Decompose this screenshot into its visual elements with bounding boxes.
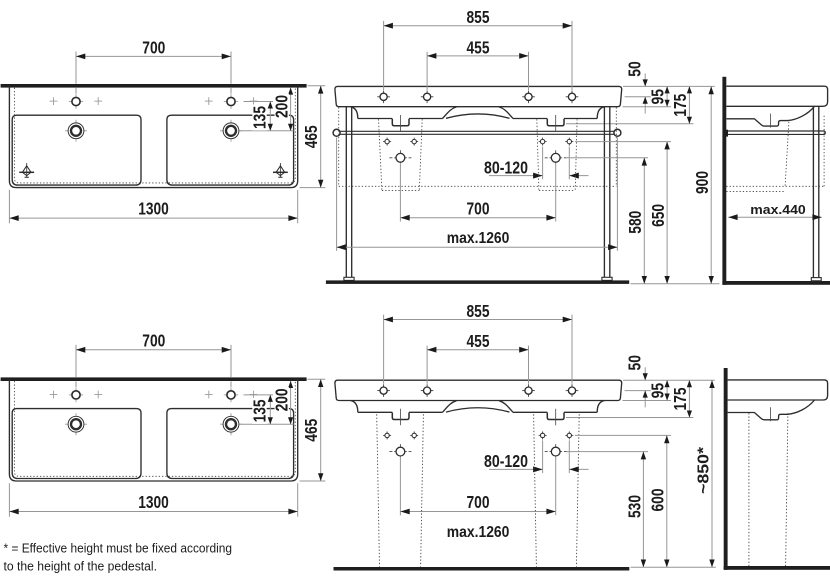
svg-text:max.1260: max.1260: [447, 524, 510, 541]
svg-text:135: 135: [250, 106, 270, 129]
svg-text:855: 855: [467, 7, 490, 27]
svg-text:855: 855: [467, 301, 490, 321]
svg-text:650: 650: [648, 204, 668, 227]
svg-text:175: 175: [670, 387, 690, 410]
svg-text:80-120: 80-120: [484, 157, 528, 177]
svg-text:600: 600: [648, 489, 668, 512]
svg-text:max.1260: max.1260: [447, 230, 510, 247]
svg-text:530: 530: [624, 495, 644, 518]
svg-text:~850*: ~850*: [695, 446, 712, 494]
svg-text:700: 700: [142, 331, 165, 351]
svg-text:135: 135: [250, 399, 270, 422]
svg-text:200: 200: [272, 388, 292, 411]
svg-text:80-120: 80-120: [484, 451, 528, 471]
svg-text:95: 95: [648, 89, 668, 105]
svg-text:95: 95: [648, 383, 668, 399]
svg-text:580: 580: [625, 211, 645, 234]
svg-text:455: 455: [467, 331, 490, 351]
svg-text:455: 455: [467, 37, 490, 57]
svg-text:465: 465: [301, 418, 321, 441]
svg-text:1300: 1300: [138, 492, 169, 512]
svg-text:1300: 1300: [138, 199, 169, 219]
svg-text:50: 50: [625, 355, 645, 371]
svg-text:700: 700: [467, 492, 490, 512]
svg-text:200: 200: [272, 95, 292, 118]
svg-text:900: 900: [692, 171, 712, 194]
svg-text:700: 700: [142, 37, 165, 57]
svg-text:max.440: max.440: [750, 202, 806, 217]
svg-text:175: 175: [670, 93, 690, 116]
svg-text:* = Effective height must be f: * = Effective height must be fixed accor…: [4, 541, 233, 556]
svg-text:to the height of the pedestal.: to the height of the pedestal.: [4, 559, 158, 574]
svg-text:50: 50: [625, 61, 645, 77]
svg-text:700: 700: [467, 198, 490, 218]
svg-text:465: 465: [301, 125, 321, 148]
